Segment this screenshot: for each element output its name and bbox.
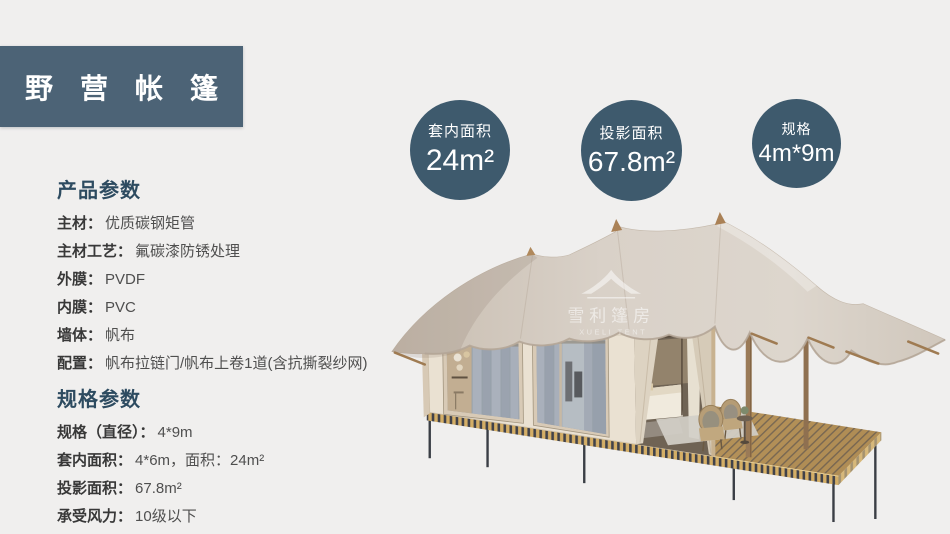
param-value: 帆布 <box>105 327 135 344</box>
page-title: 野营帐篷 <box>0 46 243 127</box>
peak-cap <box>715 212 726 225</box>
param-label: 内膜： <box>57 299 102 316</box>
param-value: 氟碳漆防锈处理 <box>135 243 240 260</box>
param-row-material: 主材：优质碳钢矩管 <box>57 210 392 238</box>
param-label: 配置： <box>57 355 102 372</box>
badge-inner-area-label: 套内面积 <box>428 124 492 139</box>
tent-product-image: 雪利篷房 XUELI TENT <box>378 212 950 531</box>
brand-watermark-cn: 雪利篷房 <box>567 307 655 326</box>
param-label: 墙体： <box>57 327 102 344</box>
param-row-projection-area: 投影面积：67.8m² <box>57 475 392 503</box>
page: 野营帐篷 套内面积 24m² 投影面积 67.8m² 规格 4m*9m 产品参数… <box>0 0 950 534</box>
peak-cap <box>611 219 622 232</box>
param-value: 4*9m <box>158 424 193 441</box>
param-row-size: 规格（直径）：4*9m <box>57 419 392 447</box>
spec-params-section: 规格参数 规格（直径）：4*9m 套内面积：4*6m，面积：24m² 投影面积：… <box>57 388 392 531</box>
param-label: 外膜： <box>57 271 102 288</box>
param-row-wall: 墙体：帆布 <box>57 322 392 350</box>
brand-watermark-en: XUELI TENT <box>579 328 647 337</box>
badge-inner-area: 套内面积 24m² <box>410 100 510 200</box>
param-value: 优质碳钢矩管 <box>105 215 195 232</box>
badge-size-value: 4m*9m <box>758 142 834 166</box>
param-value: 67.8m² <box>135 480 182 497</box>
param-label: 主材： <box>57 215 102 232</box>
peak-cap <box>526 247 535 256</box>
spec-params-heading: 规格参数 <box>57 388 392 412</box>
badge-projection-area-value: 67.8m² <box>588 148 675 176</box>
badge-projection-area: 投影面积 67.8m² <box>581 100 682 201</box>
badge-inner-area-value: 24m² <box>426 146 494 176</box>
product-params-heading: 产品参数 <box>57 179 392 203</box>
canopy-pole-right <box>804 334 809 450</box>
param-value: 帆布拉链门/帆布上卷1道(含抗撕裂纱网) <box>105 355 368 372</box>
param-label: 主材工艺： <box>57 243 132 260</box>
param-row-config: 配置：帆布拉链门/帆布上卷1道(含抗撕裂纱网) <box>57 350 392 378</box>
badge-size: 规格 4m*9m <box>752 99 841 188</box>
param-row-wind: 承受风力：10级以下 <box>57 503 392 531</box>
param-row-inner-area: 套内面积：4*6m，面积：24m² <box>57 447 392 475</box>
param-value: PVDF <box>105 271 145 288</box>
param-row-material-craft: 主材工艺：氟碳漆防锈处理 <box>57 238 392 266</box>
param-row-inner-membrane: 内膜：PVC <box>57 294 392 322</box>
cabin-window-right <box>532 336 609 438</box>
param-value: 4*6m，面积：24m² <box>135 452 264 469</box>
badge-size-label: 规格 <box>782 122 812 136</box>
param-label: 规格（直径）： <box>57 424 155 441</box>
param-label: 套内面积： <box>57 452 132 469</box>
param-row-outer-membrane: 外膜：PVDF <box>57 266 392 294</box>
param-label: 投影面积： <box>57 480 132 497</box>
param-value: 10级以下 <box>135 508 197 525</box>
badge-projection-area-label: 投影面积 <box>599 126 663 141</box>
product-params-section: 产品参数 主材：优质碳钢矩管 主材工艺：氟碳漆防锈处理 外膜：PVDF 内膜：P… <box>57 179 392 378</box>
param-value: PVC <box>105 299 136 316</box>
param-label: 承受风力： <box>57 508 132 525</box>
